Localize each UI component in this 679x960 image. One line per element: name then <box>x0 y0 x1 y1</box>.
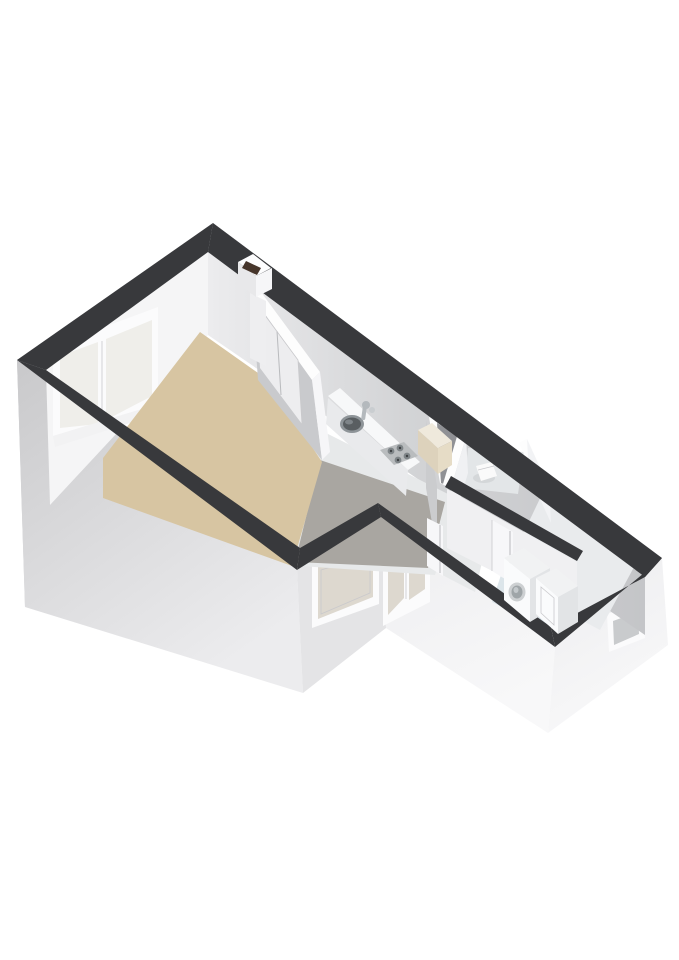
flue-pilaster <box>250 293 266 366</box>
sink <box>340 415 364 433</box>
floorplan-stage <box>0 0 679 960</box>
floorplan-canvas <box>0 0 679 960</box>
